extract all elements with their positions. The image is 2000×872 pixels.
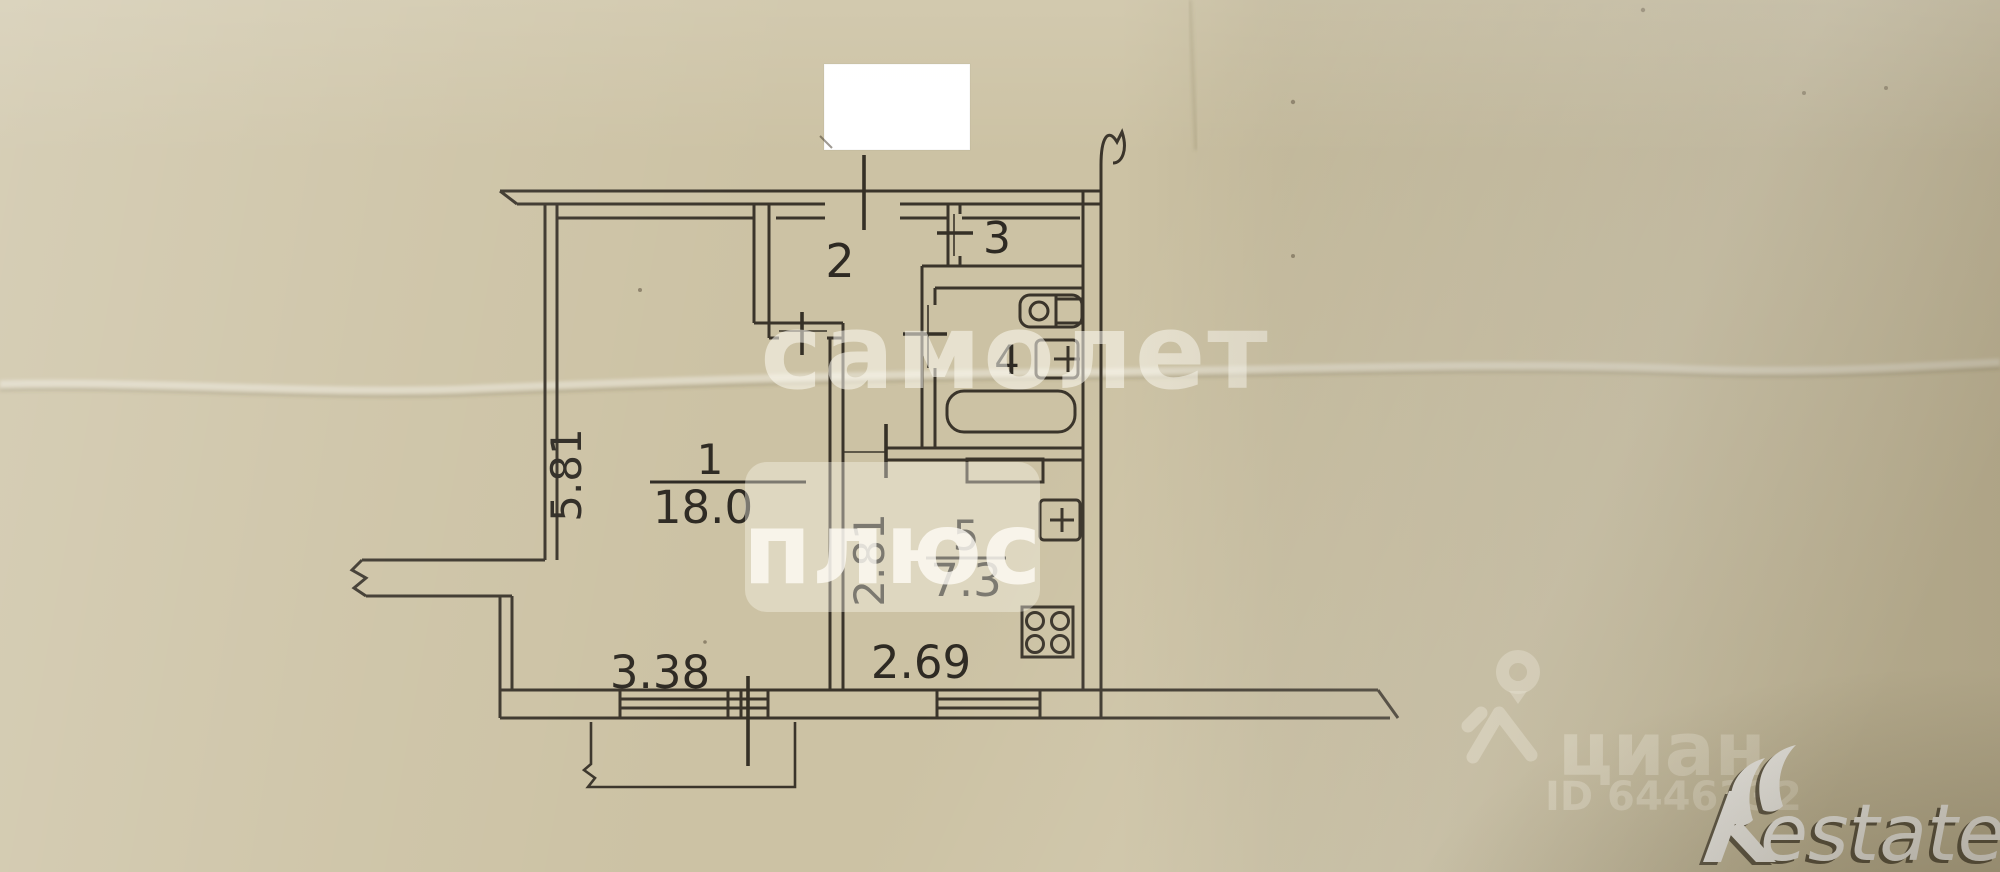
watermark-samolet: самолет плюс	[743, 291, 1270, 612]
room2-number: 2	[825, 234, 854, 288]
wall-room3-left	[948, 204, 960, 266]
room1-number: 1	[697, 435, 724, 484]
window-kitchen	[937, 690, 1040, 718]
restate-text: estate	[1760, 789, 2000, 872]
dim-room1-width: 3.38	[610, 646, 710, 699]
wall-right	[1083, 132, 1124, 718]
cian-pin-icon	[1468, 650, 1540, 757]
censor-rectangle	[824, 64, 970, 150]
watermark-cian: циан ID 6446332	[1468, 650, 1802, 820]
room1-area: 18.0	[653, 481, 753, 534]
dim-kitchen-width: 2.69	[871, 636, 971, 689]
wall-kitchen-top	[843, 448, 1083, 460]
vent-shaft-kitchen-icon	[1040, 500, 1080, 540]
watermark-samolet-text: самолет	[760, 291, 1269, 413]
walls	[352, 132, 1398, 718]
room3-number: 3	[983, 213, 1011, 264]
floorplan-drawing: 1 18.0 2 3 4 5 7.3 5.81 3.38 2.81 2.69 с…	[0, 0, 2000, 872]
watermark-plus-text: плюс	[743, 490, 1042, 607]
wall-room3-bathroom	[922, 266, 1083, 288]
paper-crease-vertical	[1190, 0, 1196, 150]
balcony-outline	[584, 722, 795, 787]
wall-left-stub	[352, 560, 545, 690]
dim-room1-height: 5.81	[542, 428, 591, 522]
scanned-floorplan-page: 1 18.0 2 3 4 5 7.3 5.81 3.38 2.81 2.69 с…	[0, 0, 2000, 872]
stove-icon	[1022, 607, 1073, 657]
